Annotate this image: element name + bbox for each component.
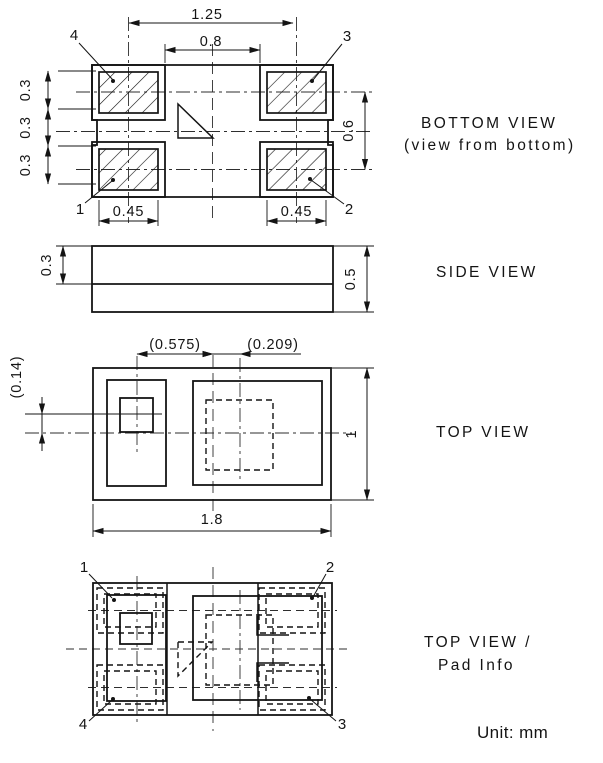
castellation-mark-square	[120, 398, 153, 432]
dim-label-pad-gap-x: 0.8	[200, 34, 223, 50]
leader-dot	[111, 79, 115, 83]
top-view: (0.575) (0.209) (0.14) 1 1.8 TOP VIEW	[9, 337, 530, 537]
pin-number-4: 4	[79, 716, 87, 733]
dim-label-pad-width-right: 0.45	[281, 204, 312, 220]
dim-label-total-height: 0.5	[343, 268, 359, 291]
dim-label-crystal-offset-x: (0.575)	[149, 337, 201, 353]
pad-info-title-line1: TOP VIEW /	[424, 634, 532, 651]
leader-line	[311, 180, 344, 204]
unit-label: Unit: mm	[477, 723, 548, 742]
dim-label-pad-height: 0.3	[18, 79, 34, 102]
dim-label-pad-pitch-y: 0.6	[341, 119, 357, 142]
hidden-cavity-square	[206, 615, 273, 685]
dim-label-pad-width-left: 0.45	[113, 204, 144, 220]
pin-number-2: 2	[345, 201, 353, 218]
bottom-view: 1.25 0.8 0.3 0.3 0.3 0.45 0.45 0.6 4 3 1…	[18, 7, 576, 226]
pad-metal-4	[99, 72, 158, 113]
dim-label-body-width: 1.8	[201, 512, 224, 528]
bottom-view-subtitle: (view from bottom)	[404, 137, 576, 154]
extension-line	[56, 246, 92, 284]
dim-label-mark-offset-y: (0.14)	[9, 356, 25, 399]
pad-metal-3	[267, 72, 326, 113]
leader-dot	[307, 696, 311, 700]
leader-dot	[310, 596, 314, 600]
pad-info-view: 1 2 3 4 TOP VIEW / Pad Info	[66, 559, 532, 733]
pad-metal-2	[267, 149, 326, 190]
castellation-mark-square	[120, 613, 152, 644]
pin-number-1: 1	[76, 201, 84, 218]
leader-dot	[308, 177, 312, 181]
leader-dot	[310, 79, 314, 83]
top-view-title: TOP VIEW	[436, 424, 530, 441]
top-body-outline	[93, 368, 331, 500]
drawing-canvas: 1.25 0.8 0.3 0.3 0.3 0.45 0.45 0.6 4 3 1…	[0, 0, 603, 763]
bottom-view-title: BOTTOM VIEW	[421, 115, 557, 132]
pin-number-4: 4	[70, 27, 78, 44]
leader-dot	[111, 178, 115, 182]
pin-number-2: 2	[326, 559, 334, 576]
dim-label-pad-gap-y: 0.3	[18, 116, 34, 139]
package-drawing-page: 1.25 0.8 0.3 0.3 0.3 0.45 0.45 0.6 4 3 1…	[0, 0, 603, 763]
side-view-title: SIDE VIEW	[436, 264, 538, 281]
orientation-mark-triangle	[178, 104, 213, 138]
extension-line	[58, 71, 96, 184]
leader-line	[313, 574, 326, 597]
side-body-outline	[92, 246, 333, 312]
dim-label-pad-height: 0.3	[18, 154, 34, 177]
leader-line	[79, 43, 113, 80]
side-view: 0.3 0.5 SIDE VIEW	[39, 246, 538, 312]
pin-number-3: 3	[338, 716, 346, 733]
pad-info-title-line2: Pad Info	[438, 657, 515, 674]
hidden-cavity-square	[206, 400, 273, 470]
pin-number-1: 1	[80, 559, 88, 576]
dim-label-pad-pitch-x: 1.25	[191, 7, 222, 23]
dim-label-body-height: 1	[344, 430, 360, 439]
dim-label-mark-offset-x: (0.209)	[247, 337, 299, 353]
leader-dot	[112, 598, 116, 602]
dim-label-lid-height: 0.3	[39, 254, 55, 277]
leader-dot	[111, 697, 115, 701]
leader-line	[313, 44, 342, 80]
hidden-orientation-mark-triangle	[178, 642, 212, 676]
pin-number-3: 3	[343, 28, 351, 45]
